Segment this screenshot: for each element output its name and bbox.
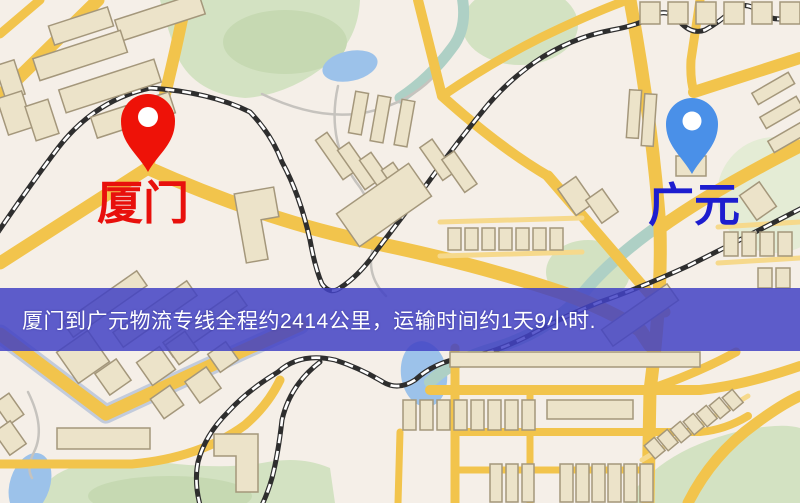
route-info-banner: 厦门到广元物流专线全程约2414公里，运输时间约1天9小时. bbox=[0, 288, 800, 351]
origin-pin-hole bbox=[138, 107, 158, 127]
origin-label: 厦门 bbox=[97, 177, 189, 229]
map: 厦门 广元 厦门到广元物流专线全程约2414公里，运输时间约1天9小时. bbox=[0, 0, 800, 503]
route-info-text: 厦门到广元物流专线全程约2414公里，运输时间约1天9小时. bbox=[22, 305, 596, 335]
map-canvas[interactable]: 厦门 广元 bbox=[0, 0, 800, 503]
destination-label: 广元 bbox=[648, 179, 740, 231]
destination-pin-hole bbox=[683, 112, 702, 131]
